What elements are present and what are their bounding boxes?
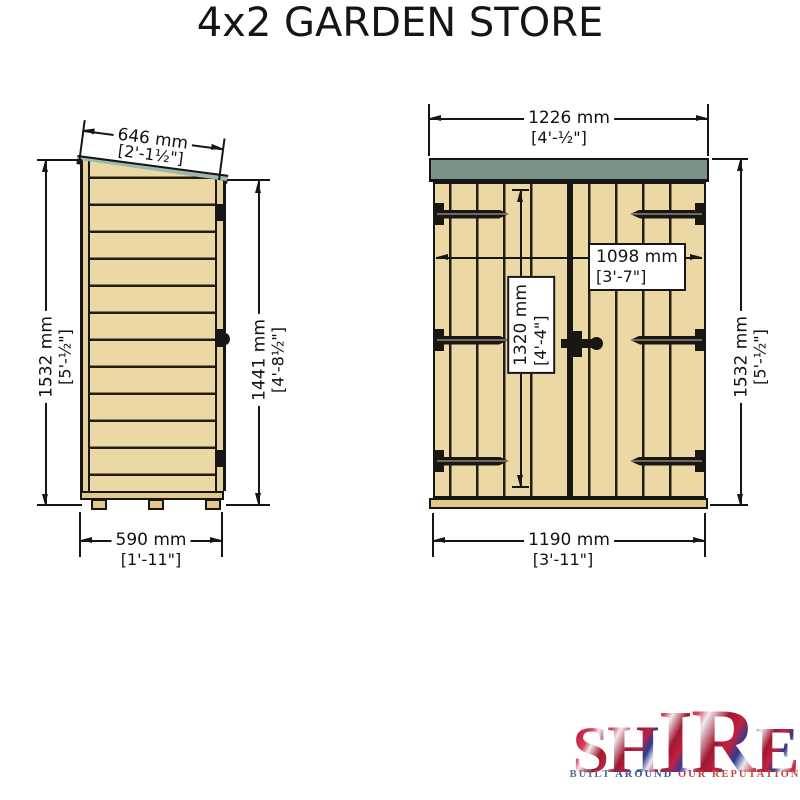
dim-arrow-up — [255, 182, 261, 193]
side-corner-trim-left — [80, 160, 90, 491]
dim-label-imperial: [5'-½"] — [57, 316, 76, 398]
dim-arrow-left — [437, 254, 448, 260]
extension-line — [704, 513, 706, 557]
front-roof — [429, 158, 709, 182]
dim-label-imperial: [4'-4"] — [532, 284, 551, 366]
dim-label-imperial: [4'-½"] — [531, 129, 587, 148]
side-foot-middle — [148, 499, 164, 510]
dim-label-mm: 1532 mm — [732, 316, 752, 398]
side-hinge-mark-top — [215, 204, 225, 221]
dim-label: 1320 mm [4'-4"] — [507, 276, 555, 374]
t-hinge-icon — [630, 336, 702, 345]
t-hinge-icon — [437, 457, 509, 466]
side-wall — [80, 160, 226, 491]
dim-label-mm: 1190 mm — [524, 530, 614, 550]
dim-arrow-left — [83, 127, 95, 134]
dim-label-mm: 1226 mm — [524, 108, 614, 128]
side-foot-right — [205, 499, 221, 510]
dim-arrow-right — [210, 537, 221, 543]
dim-label-imperial: [1'-11"] — [121, 551, 182, 570]
dim-label-mm: 1098 mm — [596, 247, 678, 267]
dim-arrow-left — [81, 537, 92, 543]
dim-label-mm: 590 mm — [112, 530, 191, 550]
t-hinge-icon — [630, 457, 702, 466]
dim-label-mm: 1320 mm — [511, 284, 531, 366]
extension-line — [707, 104, 709, 156]
t-hinge-icon — [437, 336, 509, 345]
extension-line — [227, 179, 270, 181]
dim-arrow-down — [255, 493, 261, 504]
latch-plate-icon — [572, 331, 582, 357]
dim-arrow-up — [737, 160, 743, 171]
side-door-knob — [220, 333, 230, 345]
dim-label-box: 1098 mm [3'-7"] — [588, 243, 686, 291]
dim-label-imperial: [5'-½"] — [752, 316, 771, 398]
dim-label-imperial: [3'-11"] — [533, 551, 594, 570]
drawing-title: 4x2 GARDEN STORE — [0, 0, 800, 46]
side-foot-left — [91, 499, 107, 510]
dim-label-mm: 1441 mm — [250, 319, 270, 401]
dim-arrow-up — [517, 191, 523, 202]
t-hinge-icon — [630, 210, 702, 219]
dim-arrow-down — [737, 494, 743, 505]
front-floor-base — [429, 498, 708, 509]
dim-arrow-up — [42, 161, 48, 172]
extension-line — [432, 513, 434, 557]
dim-arrow-down — [517, 475, 523, 486]
extension-line — [79, 512, 81, 557]
dim-label-imperial: [3'-7"] — [596, 267, 678, 286]
dim-arrow-right — [696, 115, 707, 121]
t-hinge-icon — [437, 210, 509, 219]
logo-wordmark: S H I R E — [569, 688, 800, 770]
extension-line — [428, 104, 430, 156]
shire-logo: S H I R E BUILT AROUND OUR REPUTATION — [569, 688, 800, 780]
drawing-canvas: 646 mm [2'-1½"] 1532 mm [5'-½"] 1441 mm — [0, 0, 800, 800]
dim-arrow-right — [693, 537, 704, 543]
dim-label-imperial: [4'-8½"] — [270, 319, 289, 401]
logo-tagline: BUILT AROUND OUR REPUTATION — [569, 769, 800, 780]
extension-line — [226, 504, 270, 506]
dim-label: 1532 mm [5'-½"] — [731, 311, 772, 403]
dim-label-mm: 1532 mm — [37, 316, 57, 398]
dim-label-box: 1320 mm [4'-4"] — [507, 276, 555, 374]
dim-arrow-down — [42, 494, 48, 505]
dim-arrow-right — [690, 254, 701, 260]
dim-label: 1441 mm [4'-8½"] — [249, 314, 290, 406]
dim-label: 1532 mm [5'-½"] — [36, 311, 77, 403]
dim-arrow-left — [434, 537, 445, 543]
latch-knob-icon — [590, 337, 603, 350]
front-doors — [433, 182, 706, 498]
side-cladding-boards — [80, 160, 226, 491]
dim-arrow-left — [430, 115, 441, 121]
dim-arrow-right — [211, 144, 223, 151]
extension-line — [221, 512, 223, 557]
side-hinge-mark-bottom — [215, 450, 225, 467]
